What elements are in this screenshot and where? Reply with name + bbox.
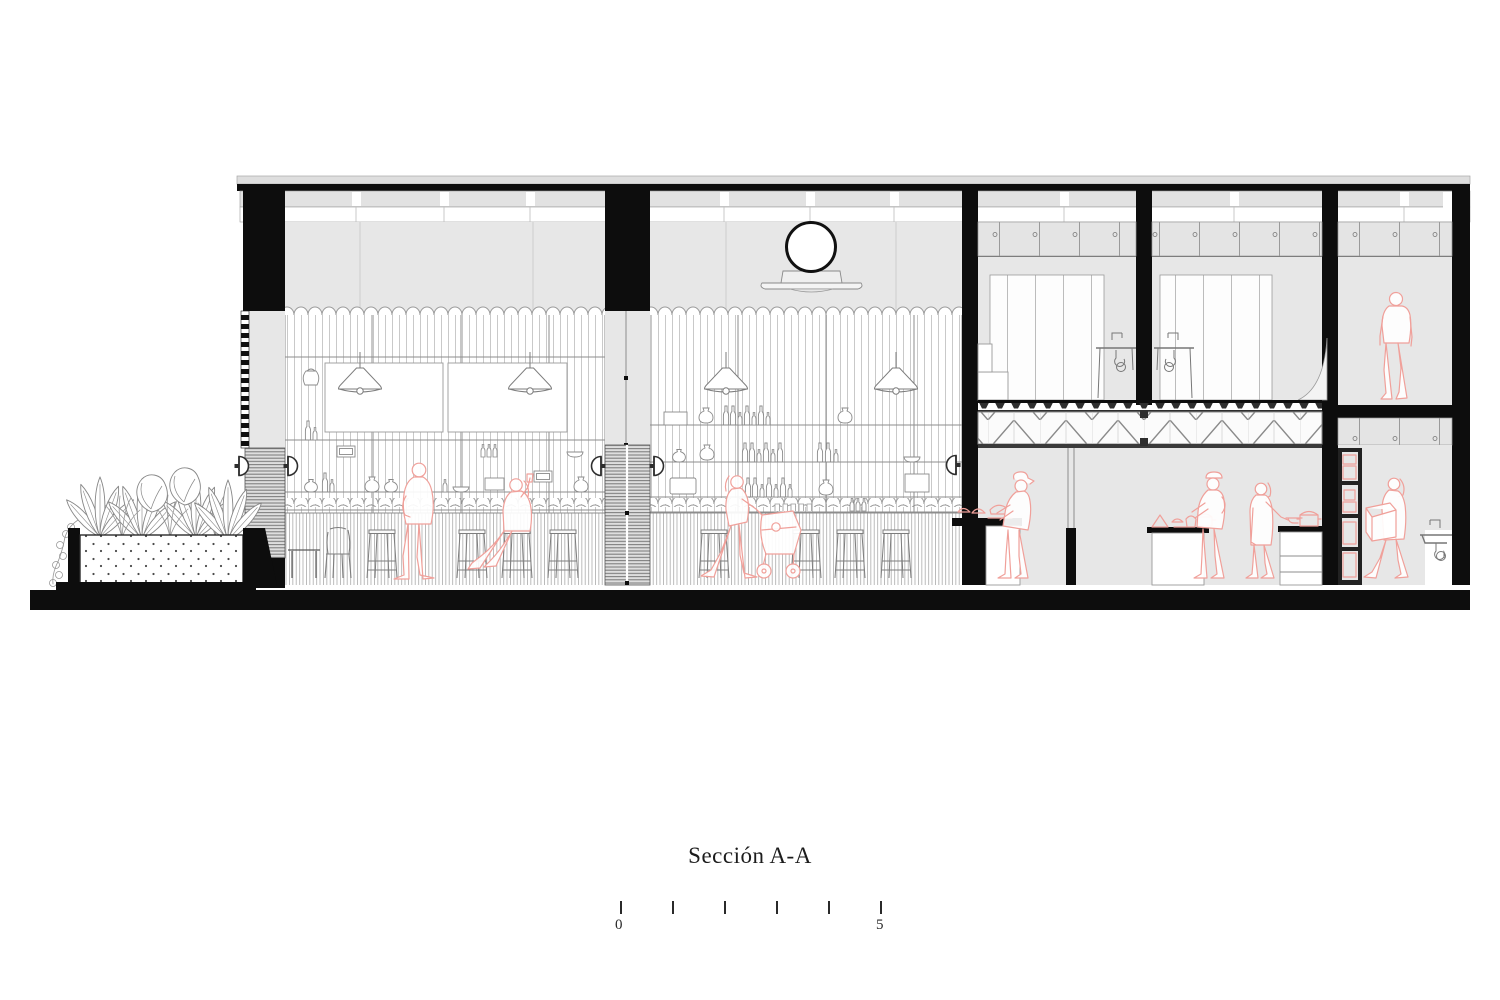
scale-label-end: 5: [876, 917, 884, 934]
door-pull-icon: [235, 457, 249, 476]
section-drawing-sheet: Sección A-A 0 5: [0, 0, 1500, 1000]
upper-room-right: [1338, 257, 1452, 405]
scale-tick: [620, 901, 622, 914]
scale-tick: [776, 901, 778, 914]
clerestory-band: [240, 191, 1470, 222]
scale-tick: [724, 901, 726, 914]
store-room: [1338, 445, 1452, 585]
ground-line: [30, 590, 1470, 610]
street-planter: [50, 468, 278, 592]
scale-tick: [828, 901, 830, 914]
roof-band: [237, 176, 1470, 191]
kitchen-level: [952, 448, 1322, 585]
scale-tick: [880, 901, 882, 914]
upper-rooms: [978, 222, 1452, 405]
upper-room-left: [978, 257, 1136, 400]
upper-room-middle: [1152, 257, 1327, 400]
drawing-title: Sección A-A: [0, 843, 1500, 869]
scale-tick: [672, 901, 674, 914]
scale-bar: [620, 901, 882, 915]
scale-label-start: 0: [615, 917, 623, 934]
